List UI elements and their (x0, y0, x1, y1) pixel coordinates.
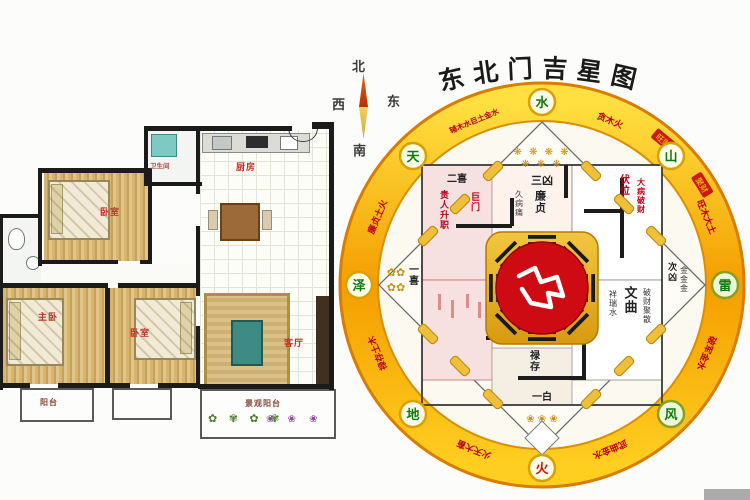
wall-segment (196, 326, 200, 386)
dining-chair (262, 210, 272, 230)
badge-south: 火 (529, 455, 555, 481)
label-sanxiong: 三凶 (531, 174, 553, 187)
badge-southeast: 风 (658, 401, 684, 427)
balcony-mid (112, 388, 172, 420)
star-row: ❋ ❋ ❋ (521, 159, 563, 170)
wall-segment (118, 283, 198, 288)
rosette-cluster: ✿✿ (387, 266, 405, 279)
floor-plan: 卫生间 厨房 卧室 主卧 卧室 客厅 阳台 景观阳台 ✿ ✾ ✿ ✾ ❀ ❀ ❀ (0, 0, 340, 500)
wall-segment (40, 168, 152, 173)
label-jiubing: 久病痛 (515, 189, 524, 217)
decor-mark (438, 294, 441, 310)
wall-segment (144, 182, 202, 186)
star-row: ❋ ❋ ❋ ❋ (513, 147, 570, 158)
bed-master (6, 298, 64, 366)
decor-mark (451, 300, 454, 318)
label-xiangrui: 祥瑞水 (609, 289, 618, 317)
label-guiren: 贵人升职 (438, 189, 450, 230)
decor-mark (478, 302, 481, 318)
pillow (51, 184, 63, 234)
wall-segment (0, 214, 3, 390)
pillow (180, 302, 192, 354)
dining-table (220, 203, 260, 241)
hallway-floor (42, 264, 196, 284)
kitchen-label: 厨房 (236, 160, 256, 173)
wall-segment (198, 384, 334, 389)
label-jinjinjin: 金金金 (680, 265, 689, 293)
master-bedroom-label: 主卧 (38, 310, 58, 323)
badge-label: 山 (664, 149, 677, 165)
plants-row-purple: ❀ ❀ ❀ (266, 414, 323, 425)
balcony-label: 阳台 (40, 397, 58, 408)
wall-segment (105, 288, 110, 388)
label-erxi: 二喜 (447, 172, 467, 185)
bagua-chart: 东北门吉星图 贪木火 旺木大土 破军金水 武曲金水 火天大畜 禄存土木 廉贞土火… (326, 48, 750, 500)
badge-label: 地 (406, 407, 419, 423)
label-dabing: 大病破财 (637, 177, 646, 214)
dining-chair (208, 210, 218, 230)
wall-segment (40, 260, 118, 264)
wall-segment (58, 383, 130, 388)
badge-north: 水 (529, 89, 555, 115)
living-room-label: 客厅 (284, 336, 304, 349)
badge-label: 火 (535, 462, 549, 477)
badge-west: 泽 (346, 272, 372, 298)
shower-cubicle (151, 134, 177, 157)
sink-icon (212, 136, 232, 150)
wall-segment (0, 214, 42, 218)
badge-northeast: 山 (658, 143, 684, 169)
label-pocai: 破财聚散 (643, 287, 652, 324)
badge-east: 雷 (712, 272, 738, 298)
badge-label: 水 (535, 95, 549, 111)
page: { "title": "东北门吉星图", "compass": {"north"… (0, 0, 750, 500)
landscape-balcony-label: 景观阳台 (245, 398, 281, 409)
badge-northwest: 天 (400, 143, 426, 169)
stove-icon (246, 136, 268, 148)
bath-top-label: 卫生间 (150, 160, 170, 170)
label-yibai: 一白 (532, 390, 552, 403)
bedroom-top-label: 卧室 (100, 205, 120, 218)
sofa-rug-set (204, 293, 290, 389)
coffee-table (231, 320, 263, 366)
badge-label: 风 (664, 408, 677, 423)
label-jumen: 巨门 (469, 192, 480, 212)
wall-segment (196, 130, 200, 194)
wall-segment (0, 283, 108, 288)
rosette-cluster: ✿✿ (387, 281, 405, 294)
master-bath-floor (3, 219, 41, 283)
corner-watermark-bar (704, 489, 750, 500)
pillow (9, 302, 21, 360)
wall-segment (148, 173, 152, 264)
wall-segment (158, 383, 198, 388)
label-lianzhen: 廉贞 (534, 189, 547, 214)
badge-southwest: 地 (400, 401, 426, 427)
wall-segment (0, 383, 30, 388)
decor-mark (466, 294, 469, 308)
wall-segment (144, 126, 292, 131)
label-wenqu: 文曲 (622, 285, 638, 314)
toilet-icon (8, 228, 25, 250)
bedroom-bottom-label: 卧室 (130, 326, 150, 339)
label-cixiong: 次凶 (666, 261, 677, 282)
label-yixi: 一喜 (407, 264, 419, 286)
center-red-disc (496, 242, 588, 334)
badge-label: 雷 (718, 278, 731, 294)
badge-label: 天 (406, 150, 420, 165)
badge-label: 泽 (352, 279, 366, 294)
